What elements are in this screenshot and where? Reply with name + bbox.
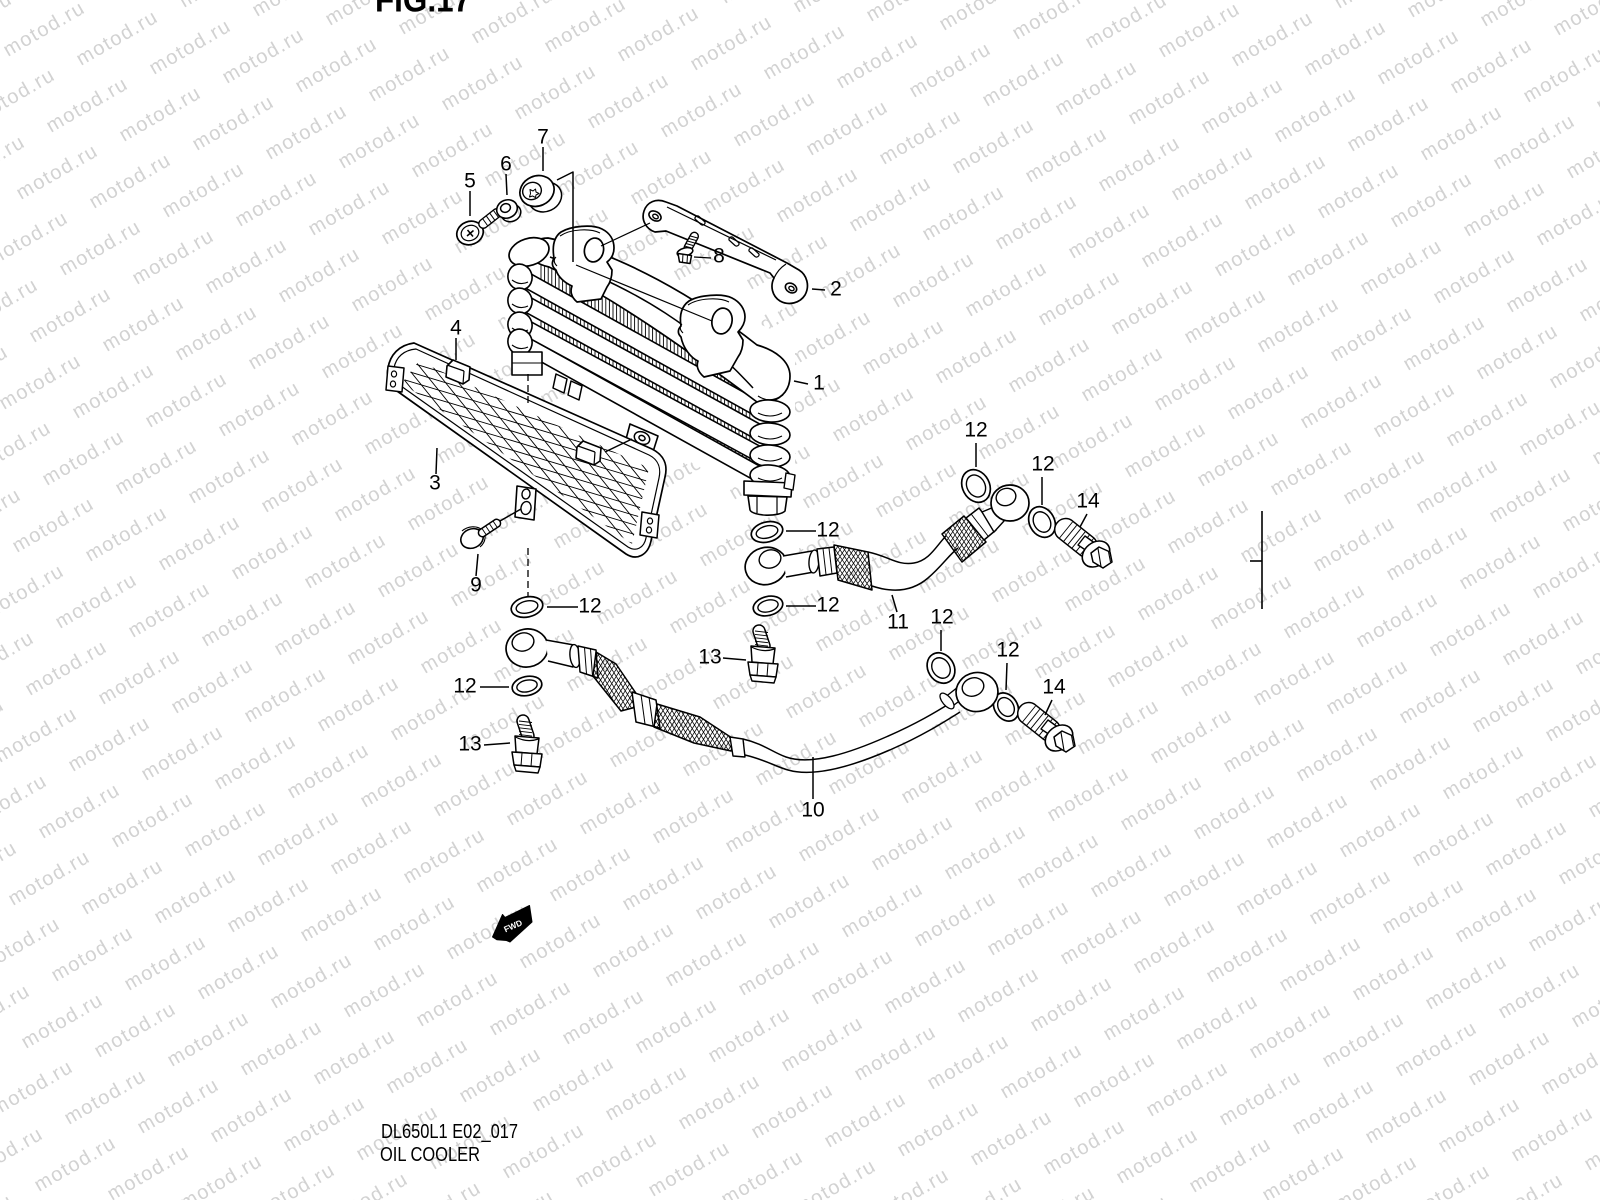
svg-text:8: 8 — [713, 245, 725, 268]
svg-text:OIL COOLER: OIL COOLER — [380, 1143, 480, 1166]
svg-text:3: 3 — [429, 472, 441, 495]
svg-text:2: 2 — [830, 278, 842, 301]
svg-text:13: 13 — [458, 733, 481, 756]
svg-text:1: 1 — [813, 372, 825, 395]
svg-text:4: 4 — [450, 317, 462, 340]
svg-text:9: 9 — [470, 574, 482, 597]
svg-text:12: 12 — [816, 594, 839, 617]
svg-text:motod.ru: motod.ru — [937, 1173, 1027, 1200]
svg-text:13: 13 — [698, 646, 721, 669]
svg-text:12: 12 — [930, 606, 953, 629]
svg-text:5: 5 — [464, 170, 476, 193]
svg-text:12: 12 — [1031, 453, 1054, 476]
svg-text:14: 14 — [1076, 490, 1100, 513]
svg-text:12: 12 — [453, 675, 476, 698]
svg-text:12: 12 — [964, 419, 987, 442]
svg-text:11: 11 — [887, 611, 909, 634]
svg-text:10: 10 — [801, 799, 824, 822]
svg-text:12: 12 — [578, 595, 601, 618]
svg-text:12: 12 — [996, 639, 1019, 662]
svg-text:14: 14 — [1042, 676, 1066, 699]
svg-text:6: 6 — [500, 153, 512, 176]
svg-text:7: 7 — [537, 126, 549, 149]
svg-text:motod.ru: motod.ru — [1550, 0, 1600, 40]
svg-text:DL650L1 E02_017: DL650L1 E02_017 — [381, 1120, 518, 1143]
svg-text:FIG.17: FIG.17 — [375, 0, 471, 20]
svg-text:12: 12 — [816, 519, 839, 542]
svg-text:motod.ru: motod.ru — [0, 1190, 17, 1200]
